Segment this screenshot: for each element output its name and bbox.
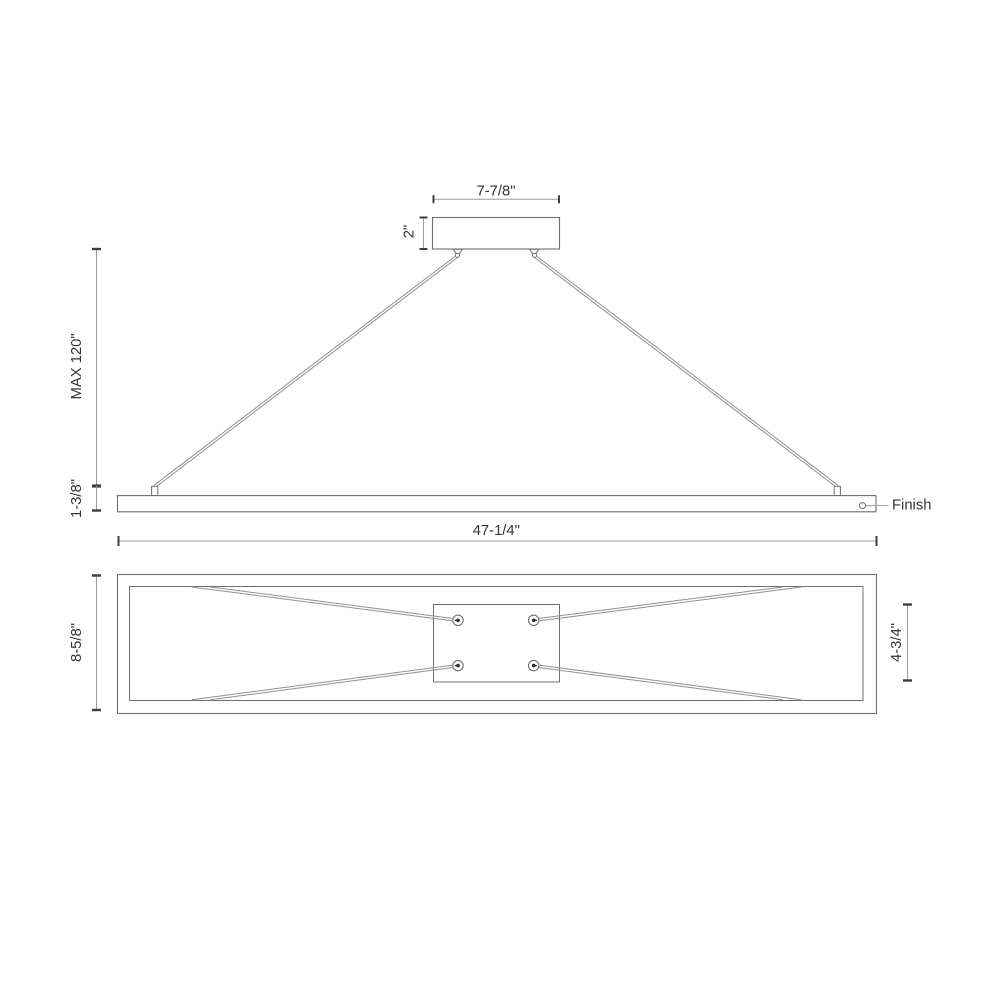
svg-text:8-5/8": 8-5/8" (69, 623, 85, 662)
svg-text:7-7/8": 7-7/8" (477, 184, 516, 200)
svg-text:2": 2" (402, 225, 418, 238)
svg-text:MAX 120": MAX 120" (69, 333, 85, 399)
svg-text:1-3/8": 1-3/8" (69, 479, 85, 518)
svg-text:47-1/4": 47-1/4" (473, 523, 520, 539)
svg-text:Finish: Finish (892, 498, 931, 514)
svg-text:4-3/4": 4-3/4" (889, 623, 905, 662)
